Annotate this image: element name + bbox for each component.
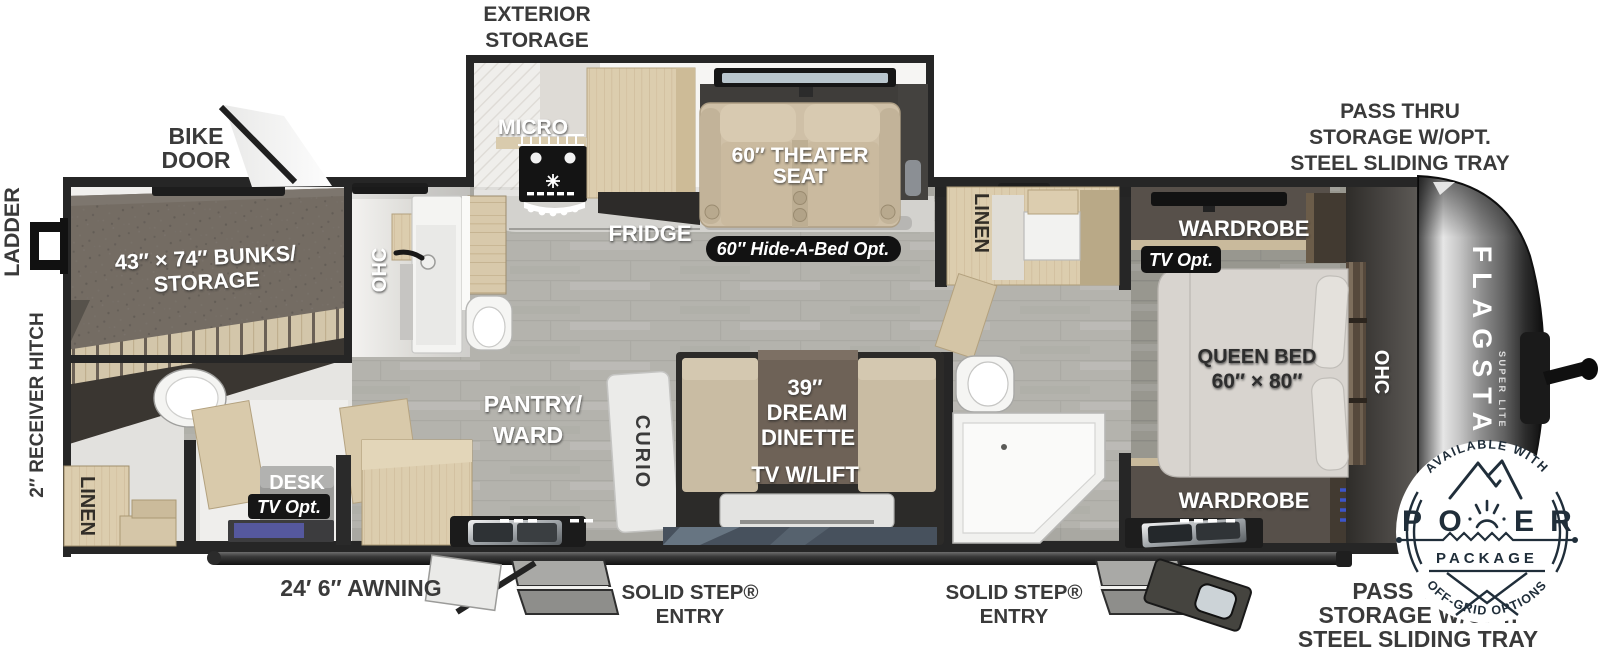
svg-text:WARDROBE: WARDROBE — [1179, 488, 1310, 513]
svg-text:OHC: OHC — [1370, 350, 1392, 394]
svg-text:DREAM: DREAM — [767, 400, 848, 425]
svg-text:EXTERIOR: EXTERIOR — [483, 3, 590, 26]
svg-text:WARDROBE: WARDROBE — [1179, 216, 1310, 241]
svg-text:SOLID STEP®: SOLID STEP® — [946, 581, 1083, 604]
svg-text:TV Opt.: TV Opt. — [257, 497, 321, 517]
svg-text:TV Opt.: TV Opt. — [1149, 250, 1213, 270]
svg-text:DOOR: DOOR — [162, 147, 231, 173]
svg-text:TV W/LIFT: TV W/LIFT — [751, 462, 859, 487]
svg-text:ENTRY: ENTRY — [980, 605, 1049, 628]
svg-text:OHC: OHC — [369, 248, 391, 292]
svg-text:STORAGE: STORAGE — [485, 29, 588, 52]
svg-text:ENTRY: ENTRY — [656, 605, 725, 628]
svg-text:STEEL SLIDING TRAY: STEEL SLIDING TRAY — [1298, 626, 1538, 647]
svg-text:39″: 39″ — [787, 375, 822, 400]
svg-text:BIKE: BIKE — [169, 123, 224, 149]
svg-text:QUEEN BED: QUEEN BED — [1198, 346, 1317, 368]
svg-text:R: R — [1550, 505, 1572, 538]
svg-text:SEAT: SEAT — [773, 165, 828, 188]
svg-text:60″ × 80″: 60″ × 80″ — [1212, 370, 1303, 393]
svg-text:SUPER LITE: SUPER LITE — [1497, 351, 1507, 429]
svg-text:PACKAGE: PACKAGE — [1436, 550, 1538, 567]
svg-text:P: P — [1402, 505, 1422, 538]
svg-text:DINETTE: DINETTE — [761, 425, 855, 450]
svg-text:LINEN: LINEN — [76, 476, 98, 536]
svg-text:SOLID STEP®: SOLID STEP® — [622, 581, 759, 604]
svg-text:STEEL SLIDING TRAY: STEEL SLIDING TRAY — [1290, 152, 1509, 175]
svg-text:60″ THEATER: 60″ THEATER — [732, 144, 869, 167]
svg-text:24′ 6″ AWNING: 24′ 6″ AWNING — [280, 575, 441, 601]
svg-text:MICRO: MICRO — [498, 116, 568, 139]
svg-text:FRIDGE: FRIDGE — [608, 221, 691, 246]
svg-text:WARD: WARD — [493, 422, 563, 448]
svg-text:60″ Hide-A-Bed Opt.: 60″ Hide-A-Bed Opt. — [717, 239, 890, 259]
svg-text:PANTRY/: PANTRY/ — [484, 391, 583, 417]
svg-text:2″ RECEIVER HITCH: 2″ RECEIVER HITCH — [27, 312, 48, 497]
svg-text:E: E — [1514, 505, 1534, 538]
svg-text:DESK: DESK — [269, 472, 325, 494]
svg-text:LADDER: LADDER — [0, 187, 24, 277]
svg-text:LINEN: LINEN — [970, 193, 992, 253]
svg-text:CURIO: CURIO — [631, 415, 653, 489]
svg-text:STORAGE W/OPT.: STORAGE W/OPT. — [1309, 126, 1491, 149]
svg-text:PASS THRU: PASS THRU — [1340, 100, 1460, 123]
